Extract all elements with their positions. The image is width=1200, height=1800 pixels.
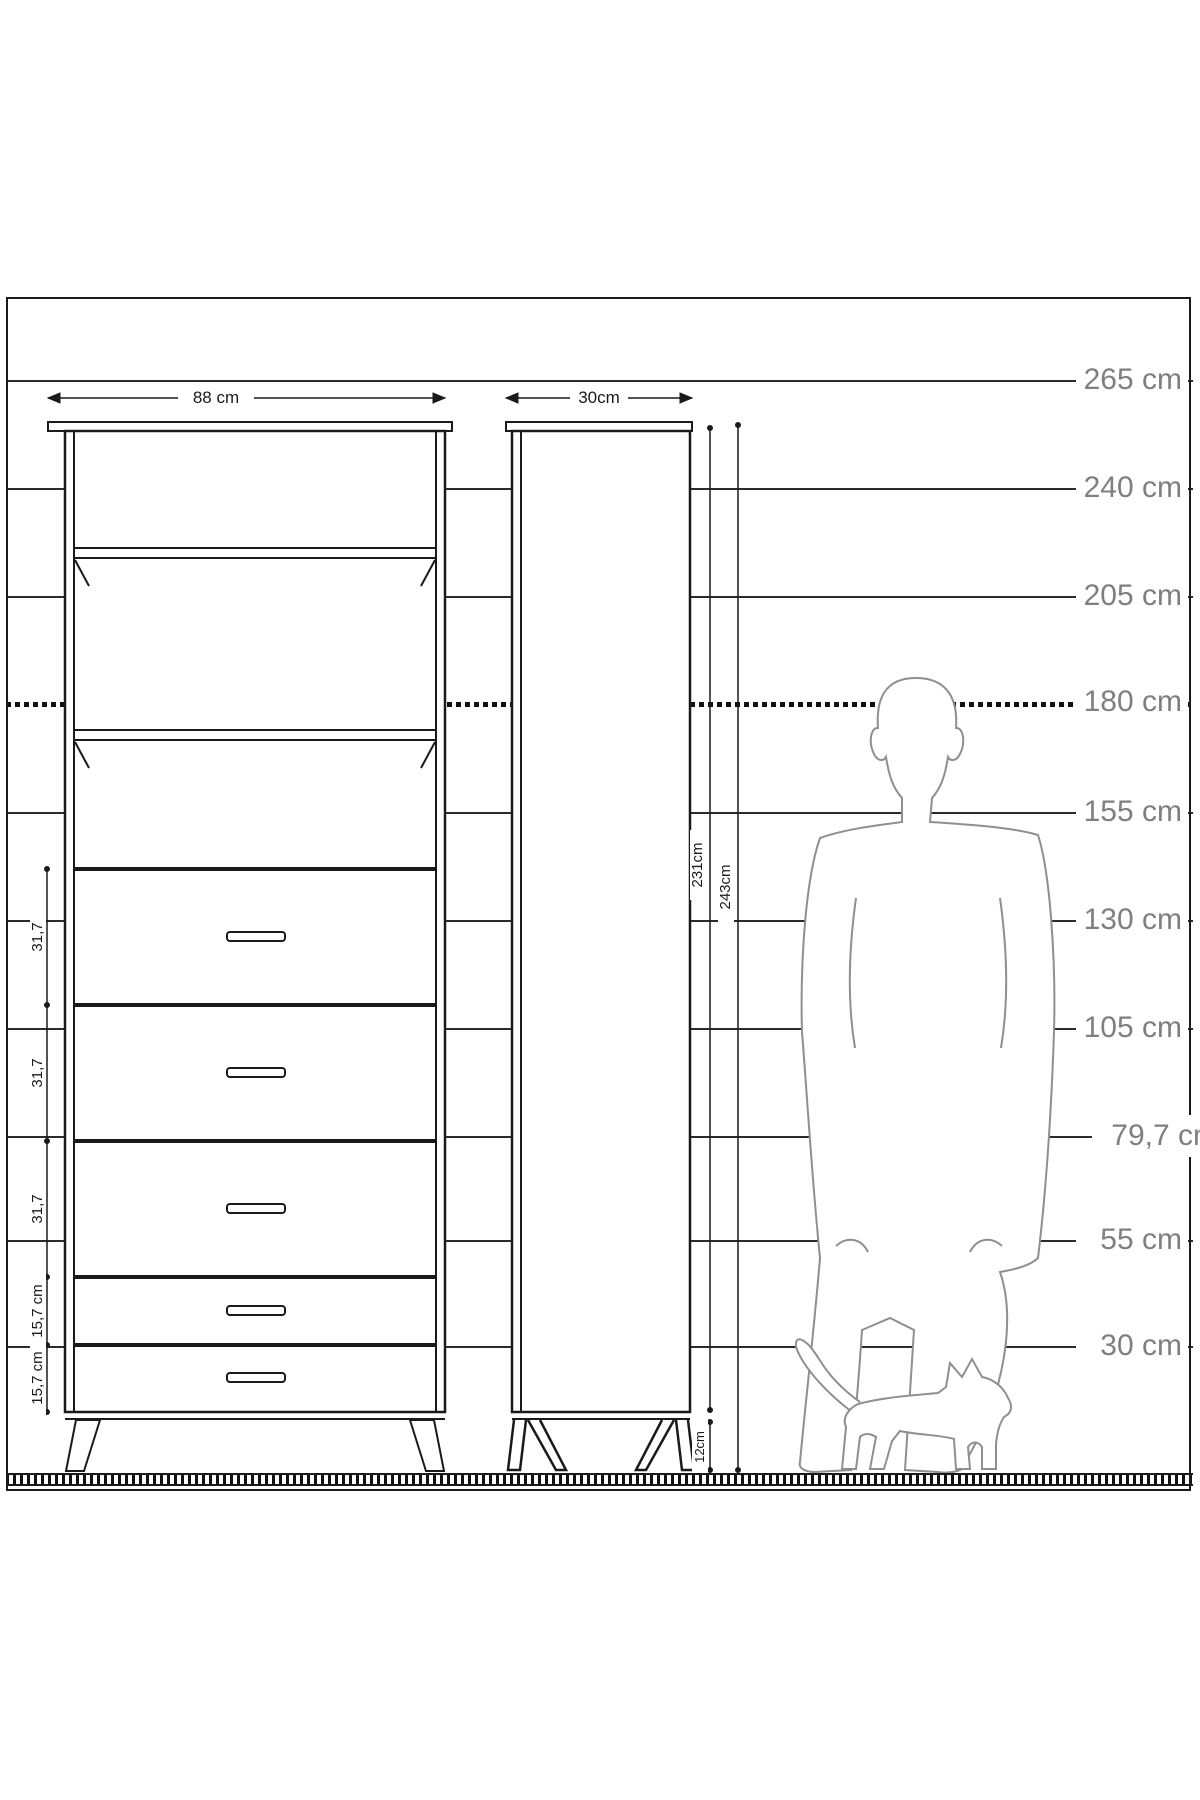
ruler-label-30: 30 cm <box>1076 1325 1188 1367</box>
ruler-label-130: 130 cm <box>1076 899 1188 941</box>
ruler-label-155: 155 cm <box>1076 791 1188 833</box>
ruler-label-240: 240 cm <box>1076 467 1188 509</box>
ruler-label-265: 265 cm <box>1076 359 1188 401</box>
drawing-frame <box>6 297 1191 1491</box>
ruler-label-205: 205 cm <box>1076 575 1188 617</box>
ruler-label-55: 55 cm <box>1076 1219 1188 1261</box>
ruler-label-79: 79,7 cm <box>1092 1115 1200 1157</box>
furniture-scale-diagram: 88 cm 30cm 31,7 31,7 31,7 15,7 cm 15,7 c… <box>0 0 1200 1800</box>
ruler-label-105: 105 cm <box>1076 1007 1188 1049</box>
ruler-label-180: 180 cm <box>1076 681 1188 723</box>
